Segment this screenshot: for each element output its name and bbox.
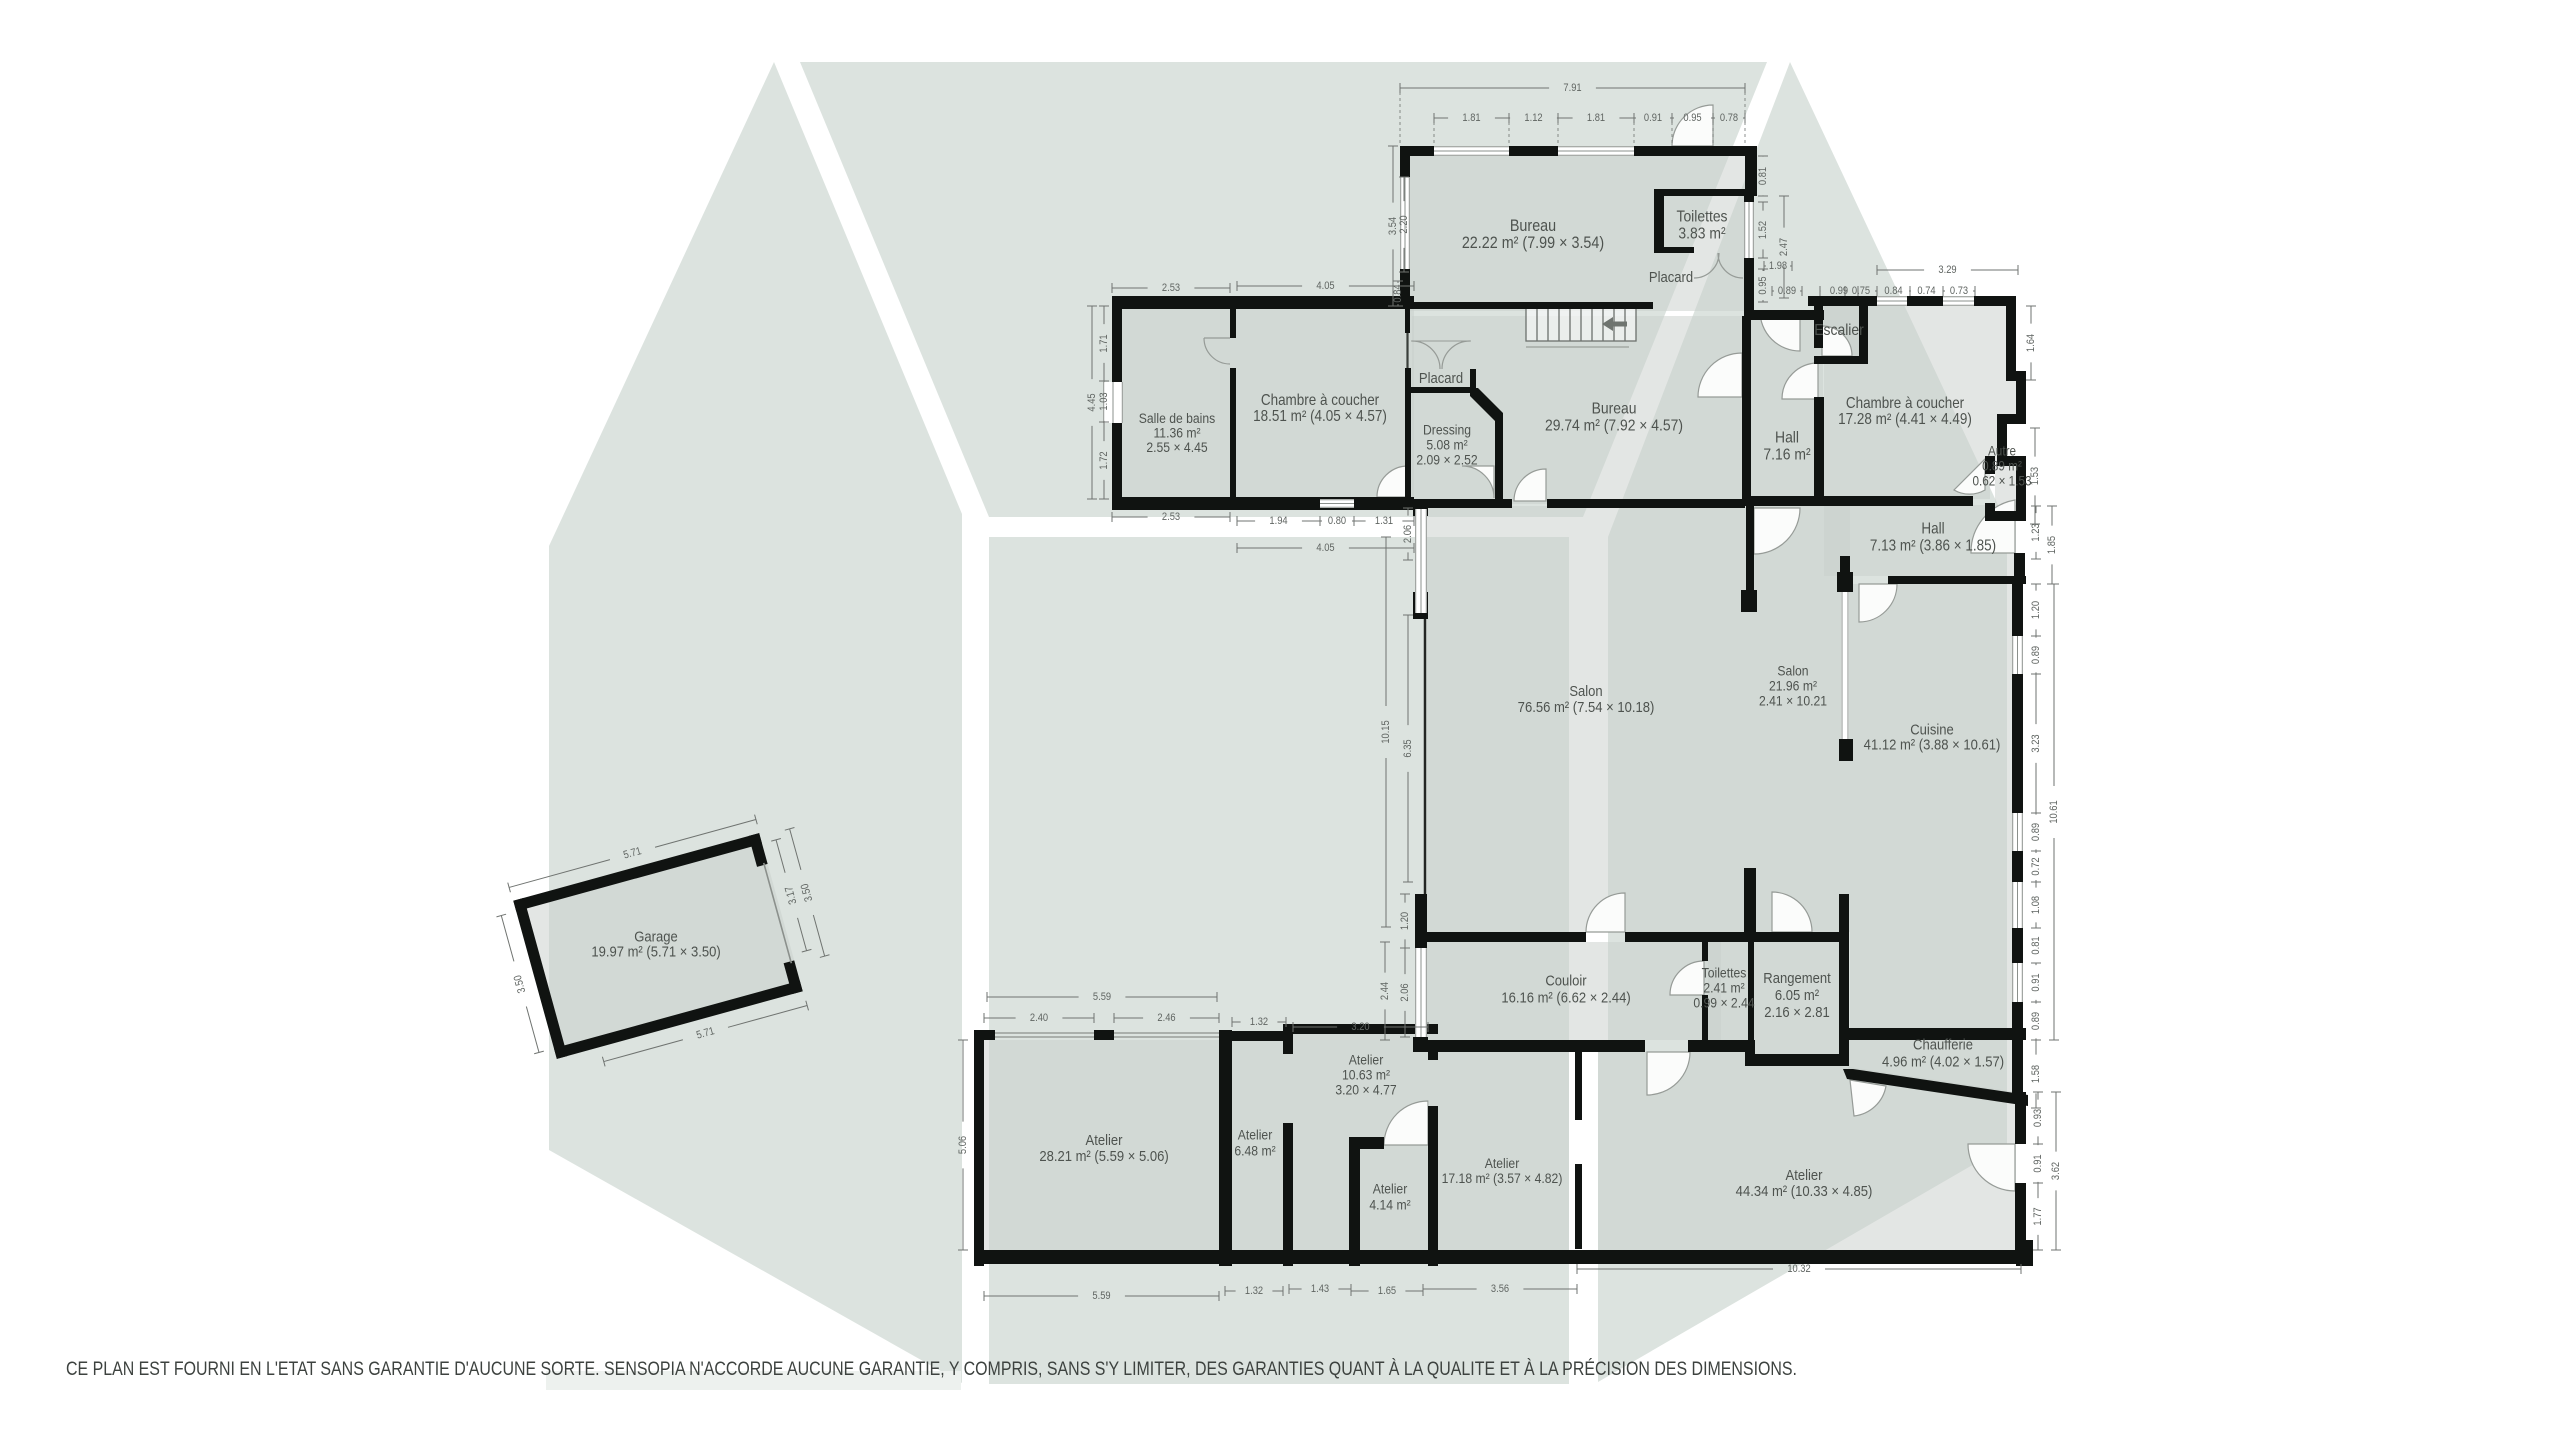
svg-text:0.84: 0.84 <box>1884 285 1902 297</box>
svg-text:3.83 m²: 3.83 m² <box>1678 225 1725 243</box>
svg-text:1.32: 1.32 <box>1245 1285 1263 1297</box>
svg-text:1.03: 1.03 <box>1098 392 1110 410</box>
svg-text:1.23: 1.23 <box>2030 523 2042 541</box>
svg-text:Chambre à coucher: Chambre à coucher <box>1261 392 1379 409</box>
svg-text:1.81: 1.81 <box>1587 112 1605 124</box>
svg-text:0.73: 0.73 <box>1950 285 1968 297</box>
svg-text:44.34 m² (10.33 × 4.85): 44.34 m² (10.33 × 4.85) <box>1736 1182 1873 1199</box>
svg-text:Salon: Salon <box>1777 663 1808 679</box>
svg-text:Atelier: Atelier <box>1485 1155 1520 1171</box>
svg-text:1.65: 1.65 <box>1378 1285 1396 1297</box>
svg-text:0.80: 0.80 <box>1328 515 1346 527</box>
svg-text:Hall: Hall <box>1921 521 1944 538</box>
svg-text:0.89 m²: 0.89 m² <box>1982 459 2022 474</box>
svg-text:5.59: 5.59 <box>1093 991 1111 1003</box>
svg-text:2.06: 2.06 <box>1399 983 1411 1001</box>
svg-text:28.21 m² (5.59 × 5.06): 28.21 m² (5.59 × 5.06) <box>1039 1147 1168 1164</box>
svg-text:17.18 m² (3.57 × 4.82): 17.18 m² (3.57 × 4.82) <box>1442 1170 1563 1186</box>
svg-text:29.74 m² (7.92 × 4.57): 29.74 m² (7.92 × 4.57) <box>1545 417 1683 435</box>
svg-text:1.58: 1.58 <box>2030 1065 2042 1083</box>
svg-text:Salon: Salon <box>1569 682 1602 699</box>
svg-text:2.53: 2.53 <box>1162 511 1180 523</box>
svg-text:3.20 × 4.77: 3.20 × 4.77 <box>1335 1082 1396 1098</box>
svg-text:2.55 × 4.45: 2.55 × 4.45 <box>1146 439 1207 455</box>
svg-text:1.72: 1.72 <box>1098 451 1110 469</box>
svg-text:0.91: 0.91 <box>2030 973 2042 991</box>
svg-text:2.09 × 2.52: 2.09 × 2.52 <box>1416 452 1477 468</box>
svg-text:0.95: 0.95 <box>1683 112 1701 124</box>
svg-text:6.35: 6.35 <box>1402 739 1414 757</box>
svg-text:0.72: 0.72 <box>2030 857 2042 875</box>
svg-text:4.05: 4.05 <box>1316 280 1334 292</box>
svg-text:7.13 m² (3.86 × 1.85): 7.13 m² (3.86 × 1.85) <box>1870 538 1996 555</box>
svg-text:0.99 × 2.44: 0.99 × 2.44 <box>1693 995 1754 1011</box>
svg-text:Couloir: Couloir <box>1545 972 1587 989</box>
svg-text:0.89: 0.89 <box>2030 823 2042 841</box>
svg-text:0.89: 0.89 <box>1778 285 1796 297</box>
svg-text:Bureau: Bureau <box>1592 400 1637 418</box>
svg-text:3.29: 3.29 <box>1938 264 1956 276</box>
svg-text:Bureau: Bureau <box>1510 217 1556 235</box>
svg-text:1.64: 1.64 <box>2025 334 2037 352</box>
svg-text:6.05 m²: 6.05 m² <box>1775 986 1820 1003</box>
svg-text:0.91: 0.91 <box>1644 112 1662 124</box>
svg-text:Rangement: Rangement <box>1763 969 1831 986</box>
svg-text:Chambre à coucher: Chambre à coucher <box>1846 395 1964 412</box>
svg-text:1.20: 1.20 <box>1399 912 1411 930</box>
svg-text:7.16 m²: 7.16 m² <box>1763 446 1810 464</box>
svg-text:Atelier: Atelier <box>1786 1166 1823 1183</box>
svg-text:3.50: 3.50 <box>512 973 528 994</box>
svg-text:3.56: 3.56 <box>1491 1283 1509 1295</box>
svg-text:Hall: Hall <box>1775 429 1799 447</box>
svg-text:Toilettes: Toilettes <box>1702 965 1747 981</box>
svg-text:0.62 × 1.53: 0.62 × 1.53 <box>1972 474 2031 489</box>
svg-text:10.63 m²: 10.63 m² <box>1342 1067 1391 1083</box>
svg-text:5.06: 5.06 <box>957 1136 969 1154</box>
svg-text:1.43: 1.43 <box>1311 1283 1329 1295</box>
svg-text:4.05: 4.05 <box>1316 542 1334 554</box>
svg-text:1.20: 1.20 <box>2030 601 2042 619</box>
svg-text:0.84: 0.84 <box>1392 284 1404 302</box>
svg-text:21.96 m²: 21.96 m² <box>1769 678 1818 694</box>
svg-text:2.46: 2.46 <box>1157 1012 1175 1024</box>
svg-text:Escalier: Escalier <box>1814 321 1863 339</box>
svg-text:3.23: 3.23 <box>2030 734 2042 752</box>
svg-text:2.20: 2.20 <box>1398 215 1410 233</box>
svg-text:7.91: 7.91 <box>1563 82 1581 94</box>
svg-text:17.28 m² (4.41 × 4.49): 17.28 m² (4.41 × 4.49) <box>1838 411 1972 428</box>
svg-text:76.56 m² (7.54 × 10.18): 76.56 m² (7.54 × 10.18) <box>1518 698 1655 715</box>
svg-text:0.75: 0.75 <box>1852 285 1870 297</box>
svg-text:4.96 m² (4.02 × 1.57): 4.96 m² (4.02 × 1.57) <box>1882 1053 2004 1070</box>
svg-text:Atelier: Atelier <box>1238 1127 1273 1143</box>
svg-text:4.45: 4.45 <box>1086 393 1098 411</box>
svg-text:0.74: 0.74 <box>1917 285 1935 297</box>
svg-text:Atelier: Atelier <box>1373 1181 1408 1197</box>
svg-text:0.81: 0.81 <box>2030 936 2042 954</box>
svg-text:Chaufferie: Chaufferie <box>1913 1036 1973 1053</box>
svg-text:41.12 m² (3.88 × 10.61): 41.12 m² (3.88 × 10.61) <box>1864 736 2001 753</box>
svg-text:0.89: 0.89 <box>2030 1012 2042 1030</box>
svg-text:3.20: 3.20 <box>1351 1021 1369 1033</box>
svg-text:19.97 m² (5.71 × 3.50): 19.97 m² (5.71 × 3.50) <box>591 943 720 960</box>
svg-text:10.61: 10.61 <box>2048 800 2060 824</box>
svg-text:6.48 m²: 6.48 m² <box>1234 1143 1276 1159</box>
svg-text:Placard: Placard <box>1419 369 1463 386</box>
svg-text:1.52: 1.52 <box>1757 221 1769 239</box>
svg-text:Toilettes: Toilettes <box>1676 208 1727 226</box>
svg-text:5.59: 5.59 <box>1092 1290 1110 1302</box>
svg-text:3.62: 3.62 <box>2050 1162 2062 1180</box>
svg-text:2.47: 2.47 <box>1778 238 1790 256</box>
svg-text:1.32: 1.32 <box>1250 1016 1268 1028</box>
svg-text:CE PLAN EST FOURNI EN L'ETAT S: CE PLAN EST FOURNI EN L'ETAT SANS GARANT… <box>66 1359 1797 1380</box>
svg-text:2.41 m²: 2.41 m² <box>1703 980 1745 996</box>
svg-text:0.89: 0.89 <box>2030 646 2042 664</box>
svg-text:0.95: 0.95 <box>1757 276 1769 294</box>
svg-text:2.41 × 10.21: 2.41 × 10.21 <box>1759 693 1827 709</box>
svg-text:2.40: 2.40 <box>1030 1012 1048 1024</box>
svg-text:1.08: 1.08 <box>2030 896 2042 914</box>
svg-text:0.91: 0.91 <box>2032 1154 2044 1172</box>
svg-text:22.22 m² (7.99 × 3.54): 22.22 m² (7.99 × 3.54) <box>1462 234 1604 252</box>
svg-text:1.98: 1.98 <box>1769 260 1787 272</box>
svg-text:10.15: 10.15 <box>1380 720 1392 744</box>
svg-text:2.06: 2.06 <box>1402 525 1414 543</box>
svg-text:0.78: 0.78 <box>1720 112 1738 124</box>
svg-text:Placard: Placard <box>1649 268 1693 285</box>
svg-text:1.85: 1.85 <box>2046 536 2058 554</box>
svg-text:1.77: 1.77 <box>2032 1207 2044 1225</box>
svg-text:Atelier: Atelier <box>1086 1131 1123 1148</box>
svg-text:1.81: 1.81 <box>1462 112 1480 124</box>
svg-text:2.44: 2.44 <box>1379 982 1391 1000</box>
svg-text:2.53: 2.53 <box>1162 282 1180 294</box>
svg-text:18.51 m² (4.05 × 4.57): 18.51 m² (4.05 × 4.57) <box>1253 408 1387 425</box>
svg-text:0.93: 0.93 <box>2032 1109 2044 1127</box>
svg-text:1.12: 1.12 <box>1524 112 1542 124</box>
svg-text:10.32: 10.32 <box>1787 1263 1811 1275</box>
svg-text:1.94: 1.94 <box>1269 515 1287 527</box>
svg-text:Dressing: Dressing <box>1423 422 1471 438</box>
svg-text:4.14 m²: 4.14 m² <box>1369 1197 1411 1213</box>
svg-text:1.71: 1.71 <box>1098 334 1110 352</box>
svg-text:16.16 m² (6.62 × 2.44): 16.16 m² (6.62 × 2.44) <box>1501 989 1630 1006</box>
svg-text:0.81: 0.81 <box>1757 167 1769 185</box>
svg-text:2.16 × 2.81: 2.16 × 2.81 <box>1764 1003 1830 1020</box>
svg-text:Atelier: Atelier <box>1349 1052 1384 1068</box>
svg-text:Autre: Autre <box>1988 444 2016 459</box>
svg-text:1.31: 1.31 <box>1375 515 1393 527</box>
svg-text:5.08 m²: 5.08 m² <box>1426 437 1468 453</box>
